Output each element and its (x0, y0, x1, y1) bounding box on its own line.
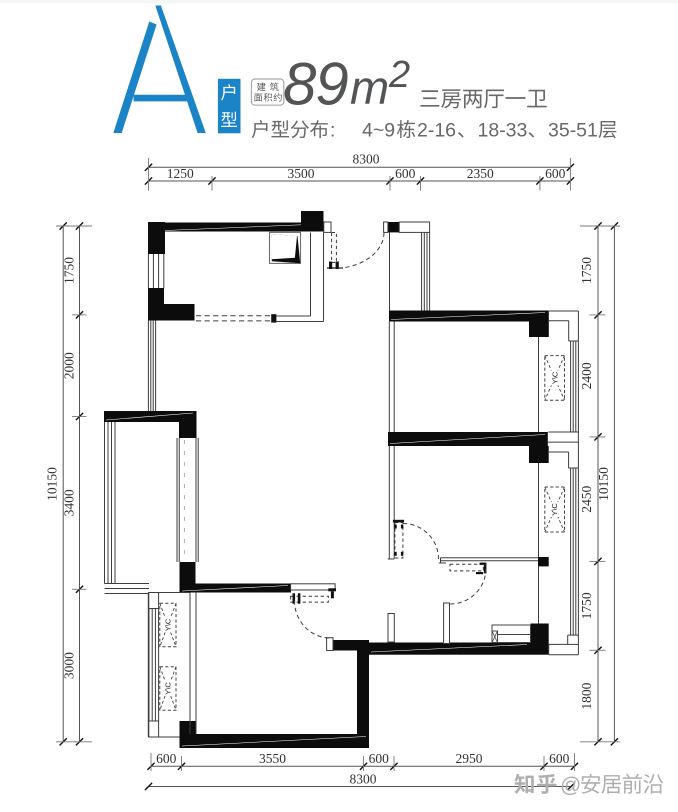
svg-text:1800: 1800 (579, 682, 594, 709)
svg-text:10150: 10150 (45, 467, 60, 501)
svg-text:1250: 1250 (167, 166, 194, 181)
svg-text:2: 2 (388, 54, 410, 96)
svg-text:8300: 8300 (353, 152, 380, 167)
svg-text:Y\C: Y\C (163, 618, 172, 631)
svg-text:10150: 10150 (596, 467, 611, 501)
svg-text:8300: 8300 (350, 772, 377, 787)
svg-text:Y\C: Y\C (550, 503, 559, 516)
svg-text:2000: 2000 (62, 352, 77, 379)
svg-text:2-16: 2-16 (417, 120, 456, 142)
svg-text:3500: 3500 (288, 166, 315, 181)
svg-text:3000: 3000 (62, 652, 77, 679)
svg-text:1750: 1750 (62, 257, 77, 284)
svg-text:600: 600 (369, 751, 390, 766)
svg-text:2950: 2950 (456, 751, 483, 766)
svg-text:18-33: 18-33 (478, 120, 528, 142)
svg-text::: : (330, 120, 335, 142)
svg-text:600: 600 (545, 166, 566, 181)
svg-text:Y\C: Y\C (163, 682, 172, 695)
svg-text:Y\C: Y\C (550, 371, 559, 384)
svg-text:600: 600 (395, 166, 416, 181)
svg-text:3400: 3400 (62, 489, 77, 516)
svg-text:35-51: 35-51 (548, 120, 598, 142)
svg-text:89: 89 (283, 51, 348, 118)
svg-text:m: m (350, 61, 389, 114)
svg-text:4~9: 4~9 (362, 120, 395, 142)
svg-text:600: 600 (549, 751, 570, 766)
svg-text:2450: 2450 (579, 485, 594, 512)
svg-text:2350: 2350 (467, 166, 494, 181)
svg-text:@: @ (560, 774, 581, 797)
svg-text:1750: 1750 (579, 257, 594, 284)
svg-text:2400: 2400 (579, 362, 594, 389)
svg-text:1750: 1750 (579, 592, 594, 619)
svg-text:600: 600 (156, 751, 177, 766)
svg-text:3550: 3550 (259, 751, 286, 766)
